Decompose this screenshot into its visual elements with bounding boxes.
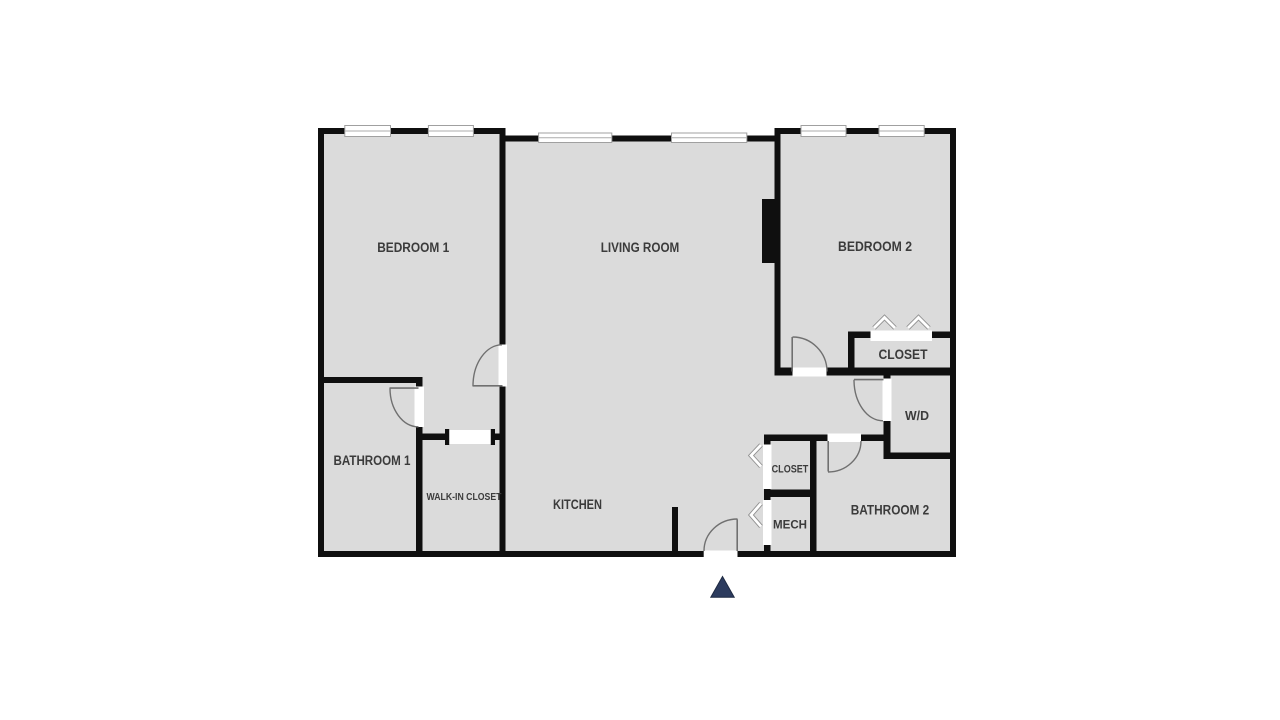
svg-text:BATHROOM 2: BATHROOM 2 <box>851 502 930 517</box>
svg-text:BEDROOM 1: BEDROOM 1 <box>377 240 449 255</box>
svg-text:CLOSET: CLOSET <box>879 347 929 362</box>
svg-text:CLOSET: CLOSET <box>772 464 809 476</box>
svg-text:WALK-IN CLOSET: WALK-IN CLOSET <box>427 492 503 503</box>
svg-text:LIVING ROOM: LIVING ROOM <box>601 240 680 255</box>
svg-text:W/D: W/D <box>905 409 929 423</box>
svg-text:KITCHEN: KITCHEN <box>553 497 602 512</box>
svg-text:MECH: MECH <box>773 519 807 531</box>
svg-text:BEDROOM 2: BEDROOM 2 <box>838 239 912 254</box>
svg-text:BATHROOM 1: BATHROOM 1 <box>334 453 411 468</box>
